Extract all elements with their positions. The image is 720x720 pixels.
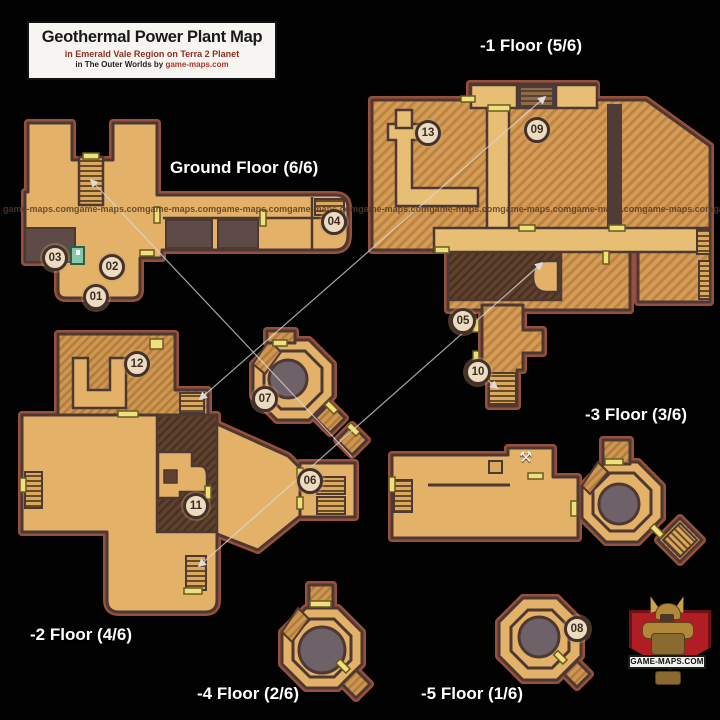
stairs-minus1-foot bbox=[489, 373, 516, 404]
map-canvas bbox=[0, 0, 720, 720]
floor-plan-minus3 bbox=[389, 440, 702, 562]
floor-plan-ground bbox=[25, 123, 348, 298]
floor-label-minus3: -3 Floor (3/6) bbox=[585, 405, 687, 425]
map-marker-07: 07 bbox=[252, 386, 278, 412]
container-icon bbox=[489, 461, 502, 473]
reactor-circle-minus5 bbox=[519, 617, 559, 657]
map-marker-10: 10 bbox=[465, 359, 491, 385]
stairs-ground-valley bbox=[79, 157, 103, 205]
logo-warrior-legs bbox=[655, 671, 681, 685]
terminal-icon bbox=[70, 246, 85, 265]
map-page: game-maps.com game-maps.com game-maps.co… bbox=[0, 0, 720, 720]
floor-label-minus5: -5 Floor (1/6) bbox=[421, 684, 523, 704]
site-logo: GAME-MAPS.COM bbox=[622, 597, 714, 697]
title-box: Geothermal Power Plant Map in Emerald Va… bbox=[27, 21, 277, 80]
stairs-minus2-stub bbox=[180, 393, 204, 413]
map-marker-13: 13 bbox=[415, 120, 441, 146]
floor-label-minus2: -2 Floor (4/6) bbox=[30, 625, 132, 645]
stairs-minus1-top bbox=[521, 88, 552, 105]
stair-alcove-minus1 bbox=[533, 261, 558, 292]
map-marker-02: 02 bbox=[99, 254, 125, 280]
workbench-icon: ⚒ bbox=[519, 448, 532, 466]
map-marker-12: 12 bbox=[124, 351, 150, 377]
map-subtitle: in Emerald Vale Region on Terra 2 Planet bbox=[29, 49, 275, 59]
map-title: Geothermal Power Plant Map bbox=[29, 28, 275, 47]
logo-warrior-chest bbox=[651, 633, 685, 655]
logo-banner[interactable]: GAME-MAPS.COM bbox=[628, 655, 706, 669]
reactor-circle-minus3 bbox=[599, 484, 639, 524]
credit-link[interactable]: game-maps.com bbox=[165, 60, 228, 69]
map-marker-11: 11 bbox=[183, 493, 209, 519]
map-marker-03: 03 bbox=[42, 245, 68, 271]
map-marker-08: 08 bbox=[564, 616, 590, 642]
map-marker-09: 09 bbox=[524, 117, 550, 143]
stairs-minus3-left bbox=[394, 480, 412, 512]
map-credit: in The Outer Worlds by game-maps.com bbox=[29, 60, 275, 69]
credit-prefix: in The Outer Worlds by bbox=[75, 60, 165, 69]
floor-label-minus1: -1 Floor (5/6) bbox=[480, 36, 582, 56]
map-marker-06: 06 bbox=[297, 468, 323, 494]
map-marker-01: 01 bbox=[83, 284, 109, 310]
stairs-minus2-lobe bbox=[186, 556, 206, 590]
map-marker-04: 04 bbox=[321, 209, 347, 235]
map-marker-05: 05 bbox=[450, 308, 476, 334]
floor-label-ground: Ground Floor (6/6) bbox=[170, 158, 318, 178]
floor-label-minus4: -4 Floor (2/6) bbox=[197, 684, 299, 704]
